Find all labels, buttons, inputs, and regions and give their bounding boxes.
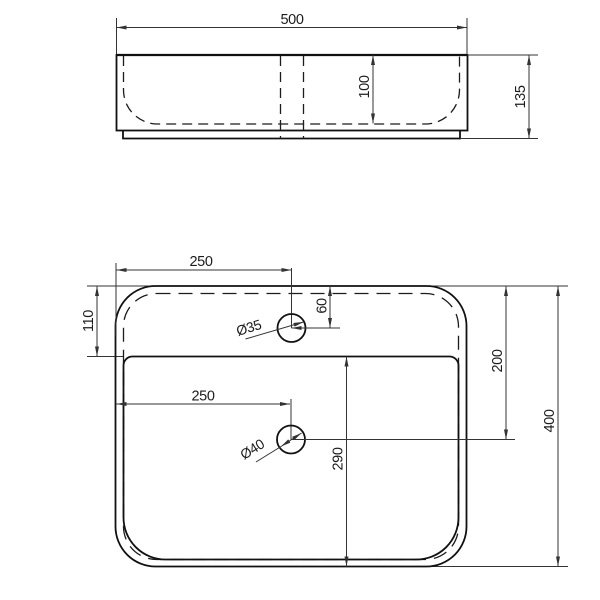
dim-rim-depth-label: 110 <box>81 310 97 332</box>
dim-overall-depth-label: 400 <box>542 409 558 432</box>
dim-bowl-to-front-label: 290 <box>331 447 347 470</box>
front-view: 500 100 135 <box>117 12 539 139</box>
basin-body-outline <box>117 55 468 131</box>
plan-view: 110 250 60 Ø35 250 Ø40 200 290 400 <box>81 254 568 567</box>
bowl-outline <box>124 357 459 560</box>
technical-drawing-canvas: 500 100 135 110 250 <box>0 0 600 600</box>
dim-overall-width-label: 500 <box>281 12 304 28</box>
dim-bowl-depth-label: 100 <box>357 75 373 98</box>
washbasin-technical-drawing: 500 100 135 110 250 <box>0 0 600 600</box>
dim-overall-height-label: 135 <box>513 85 529 108</box>
dim-drain-x-label: 250 <box>192 389 215 405</box>
dim-faucet-x-label: 250 <box>190 254 213 270</box>
dim-faucet-y-label: 60 <box>315 298 331 314</box>
drain-hole-dia-label: Ø40 <box>237 435 267 462</box>
dim-drain-y-label: 200 <box>490 349 506 372</box>
bowl-hidden-contour <box>124 56 460 124</box>
basin-base-outline <box>123 131 460 139</box>
drain-hidden-lines <box>281 56 304 139</box>
